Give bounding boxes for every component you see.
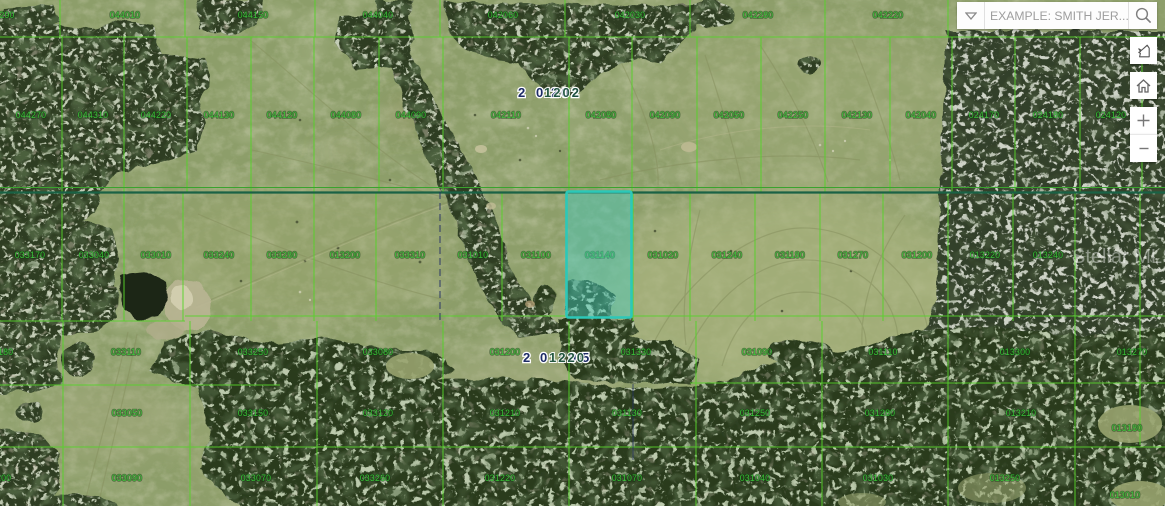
- svg-text:042090: 042090: [650, 110, 681, 120]
- svg-text:031200: 031200: [490, 347, 521, 357]
- svg-text:013220: 013220: [970, 250, 1001, 260]
- svg-text:031020: 031020: [648, 250, 679, 260]
- svg-text:044310: 044310: [78, 110, 109, 120]
- svg-text:033240: 033240: [204, 250, 235, 260]
- svg-text:031010: 031010: [458, 250, 489, 260]
- svg-text:042250: 042250: [778, 110, 809, 120]
- svg-text:044010: 044010: [110, 10, 141, 20]
- svg-text:031090: 031090: [742, 347, 773, 357]
- svg-text:033150: 033150: [238, 408, 269, 418]
- svg-text:024120: 024120: [1096, 110, 1127, 120]
- svg-text:031130: 031130: [612, 408, 642, 418]
- svg-text:013010: 013010: [1110, 490, 1141, 500]
- svg-text:013240: 013240: [1033, 250, 1064, 260]
- svg-text:042080: 042080: [586, 110, 617, 120]
- svg-text:031110: 031110: [868, 347, 897, 357]
- svg-text:033260: 033260: [360, 473, 391, 483]
- svg-text:044040: 044040: [363, 10, 394, 20]
- svg-text:031200: 031200: [902, 250, 933, 260]
- svg-text:033120: 033120: [363, 408, 394, 418]
- svg-text:042130: 042130: [842, 110, 873, 120]
- svg-text:013270: 013270: [1117, 347, 1148, 357]
- svg-text:031040: 031040: [740, 473, 771, 483]
- svg-text:042220: 042220: [873, 10, 904, 20]
- svg-text:031180: 031180: [775, 250, 805, 260]
- svg-text:042050: 042050: [714, 110, 745, 120]
- svg-text:031220: 031220: [485, 473, 516, 483]
- svg-text:044090: 044090: [396, 110, 427, 120]
- svg-text:033050: 033050: [112, 408, 143, 418]
- svg-text:031070: 031070: [612, 473, 643, 483]
- svg-text:290: 290: [0, 10, 15, 20]
- svg-text:1202: 1202: [544, 85, 581, 100]
- svg-text:031100: 031100: [521, 250, 551, 260]
- svg-text:031210: 031210: [490, 408, 521, 418]
- svg-text:033010: 033010: [141, 250, 172, 260]
- svg-text:031250: 031250: [740, 408, 771, 418]
- svg-text:044270: 044270: [16, 110, 47, 120]
- svg-text:033180: 033180: [0, 347, 13, 357]
- svg-text:033310: 033310: [395, 250, 426, 260]
- svg-text:013200: 013200: [330, 250, 361, 260]
- svg-text:031330: 031330: [621, 347, 652, 357]
- svg-text:042030: 042030: [615, 10, 646, 20]
- svg-text:2: 2: [523, 350, 530, 365]
- svg-text:033080: 033080: [363, 347, 394, 357]
- svg-text:044120: 044120: [267, 110, 298, 120]
- svg-text:033200: 033200: [0, 473, 11, 483]
- svg-text:033170: 033170: [15, 250, 46, 260]
- svg-text:031240: 031240: [712, 250, 743, 260]
- svg-text:1220: 1220: [549, 350, 586, 365]
- svg-text:042060: 042060: [488, 10, 519, 20]
- svg-text:0: 0: [540, 350, 547, 365]
- svg-text:033110: 033110: [111, 347, 141, 357]
- svg-text:044220: 044220: [141, 110, 172, 120]
- svg-text:013250: 013250: [990, 473, 1021, 483]
- svg-text:044150: 044150: [238, 10, 269, 20]
- svg-text:044080: 044080: [331, 110, 362, 120]
- svg-text:2: 2: [518, 85, 525, 100]
- svg-text:Stellar MLS: Stellar MLS: [1072, 246, 1165, 268]
- svg-text:033280: 033280: [267, 250, 298, 260]
- svg-text:042280: 042280: [743, 10, 774, 20]
- svg-text:031280: 031280: [865, 408, 896, 418]
- svg-text:013300: 013300: [1000, 347, 1031, 357]
- svg-text:0: 0: [536, 85, 543, 100]
- svg-text:024180: 024180: [1033, 110, 1064, 120]
- svg-text:044130: 044130: [204, 110, 235, 120]
- svg-text:033250: 033250: [238, 347, 269, 357]
- svg-text:033040: 033040: [79, 250, 110, 260]
- svg-text:024170: 024170: [969, 110, 1000, 120]
- svg-text:013210: 013210: [1006, 408, 1037, 418]
- svg-text:033090: 033090: [112, 473, 143, 483]
- svg-text:042110: 042110: [491, 110, 521, 120]
- svg-text:031030: 031030: [863, 473, 894, 483]
- svg-text:013180: 013180: [1112, 423, 1143, 433]
- svg-text:031270: 031270: [838, 250, 869, 260]
- svg-text:042040: 042040: [906, 110, 937, 120]
- svg-text:033070: 033070: [241, 473, 272, 483]
